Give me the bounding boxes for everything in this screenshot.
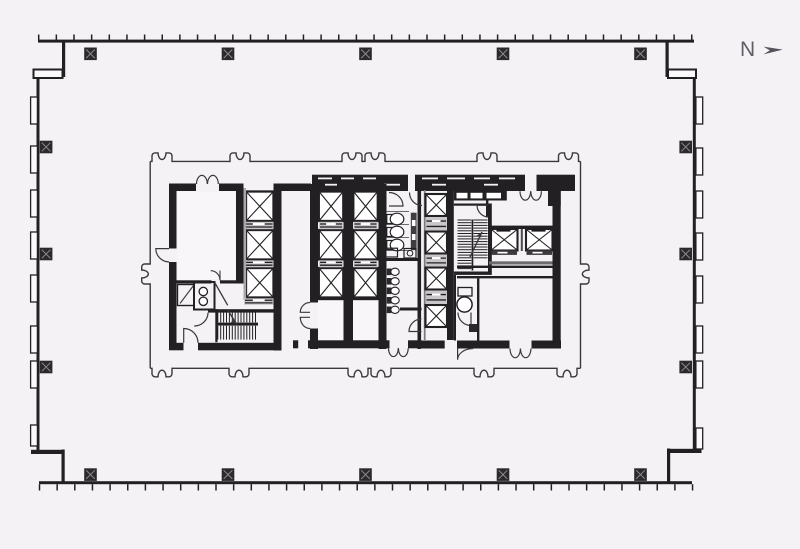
svg-text:N: N bbox=[740, 38, 755, 61]
